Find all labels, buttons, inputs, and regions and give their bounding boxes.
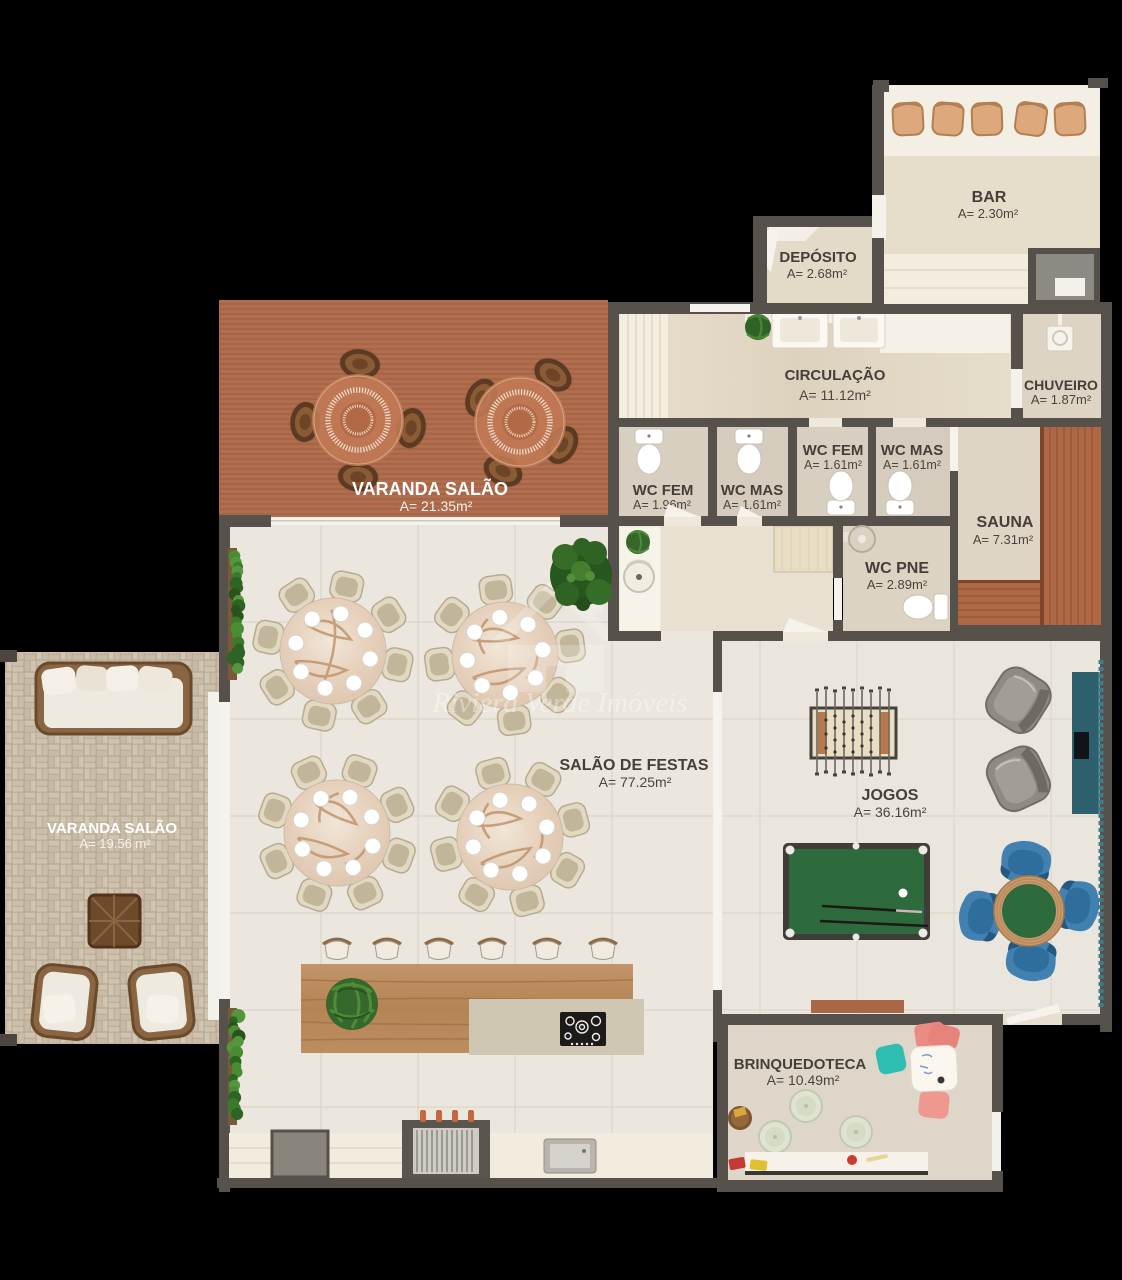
svg-text:Riviera Verde Imóveis: Riviera Verde Imóveis xyxy=(432,687,688,719)
svg-text:A= 77.25m²: A= 77.25m² xyxy=(599,774,672,790)
svg-text:SALÃO DE FESTAS: SALÃO DE FESTAS xyxy=(559,754,708,774)
svg-text:WC PNE: WC PNE xyxy=(865,560,929,577)
svg-text:CHUVEIRO: CHUVEIRO xyxy=(1024,377,1098,393)
svg-text:A= 36.16m²: A= 36.16m² xyxy=(854,804,927,820)
svg-text:A= 7.31m²: A= 7.31m² xyxy=(973,532,1034,547)
svg-text:WC FEM: WC FEM xyxy=(633,482,694,499)
svg-text:A= 21.35m²: A= 21.35m² xyxy=(400,498,473,514)
svg-text:JOGOS: JOGOS xyxy=(862,787,919,804)
svg-text:A= 11.12m²: A= 11.12m² xyxy=(799,387,871,403)
svg-text:SAUNA: SAUNA xyxy=(977,514,1034,531)
svg-text:WC FEM: WC FEM xyxy=(803,442,864,459)
svg-text:CIRCULAÇÃO: CIRCULAÇÃO xyxy=(785,366,886,384)
svg-text:A= 1.87m²: A= 1.87m² xyxy=(1031,392,1092,407)
svg-text:WC MAS: WC MAS xyxy=(881,442,944,459)
svg-text:A= 1.61m²: A= 1.61m² xyxy=(723,498,781,512)
svg-text:VARANDA SALÃO: VARANDA SALÃO xyxy=(47,819,177,837)
svg-text:A= 19.56 m²: A= 19.56 m² xyxy=(79,836,151,851)
svg-text:DEPÓSITO: DEPÓSITO xyxy=(779,248,857,266)
svg-text:A= 2.30m²: A= 2.30m² xyxy=(958,206,1019,221)
svg-text:A= 1.61m²: A= 1.61m² xyxy=(804,458,862,472)
svg-text:WC MAS: WC MAS xyxy=(721,482,784,499)
svg-text:A= 2.89m²: A= 2.89m² xyxy=(867,577,928,592)
svg-text:BAR: BAR xyxy=(972,189,1007,206)
svg-text:VARANDA SALÃO: VARANDA SALÃO xyxy=(352,478,508,499)
svg-text:A= 1.61m²: A= 1.61m² xyxy=(883,458,941,472)
svg-text:A= 2.68m²: A= 2.68m² xyxy=(787,266,848,281)
svg-text:A= 10.49m²: A= 10.49m² xyxy=(767,1072,840,1088)
svg-text:BRINQUEDOTECA: BRINQUEDOTECA xyxy=(734,1056,867,1073)
